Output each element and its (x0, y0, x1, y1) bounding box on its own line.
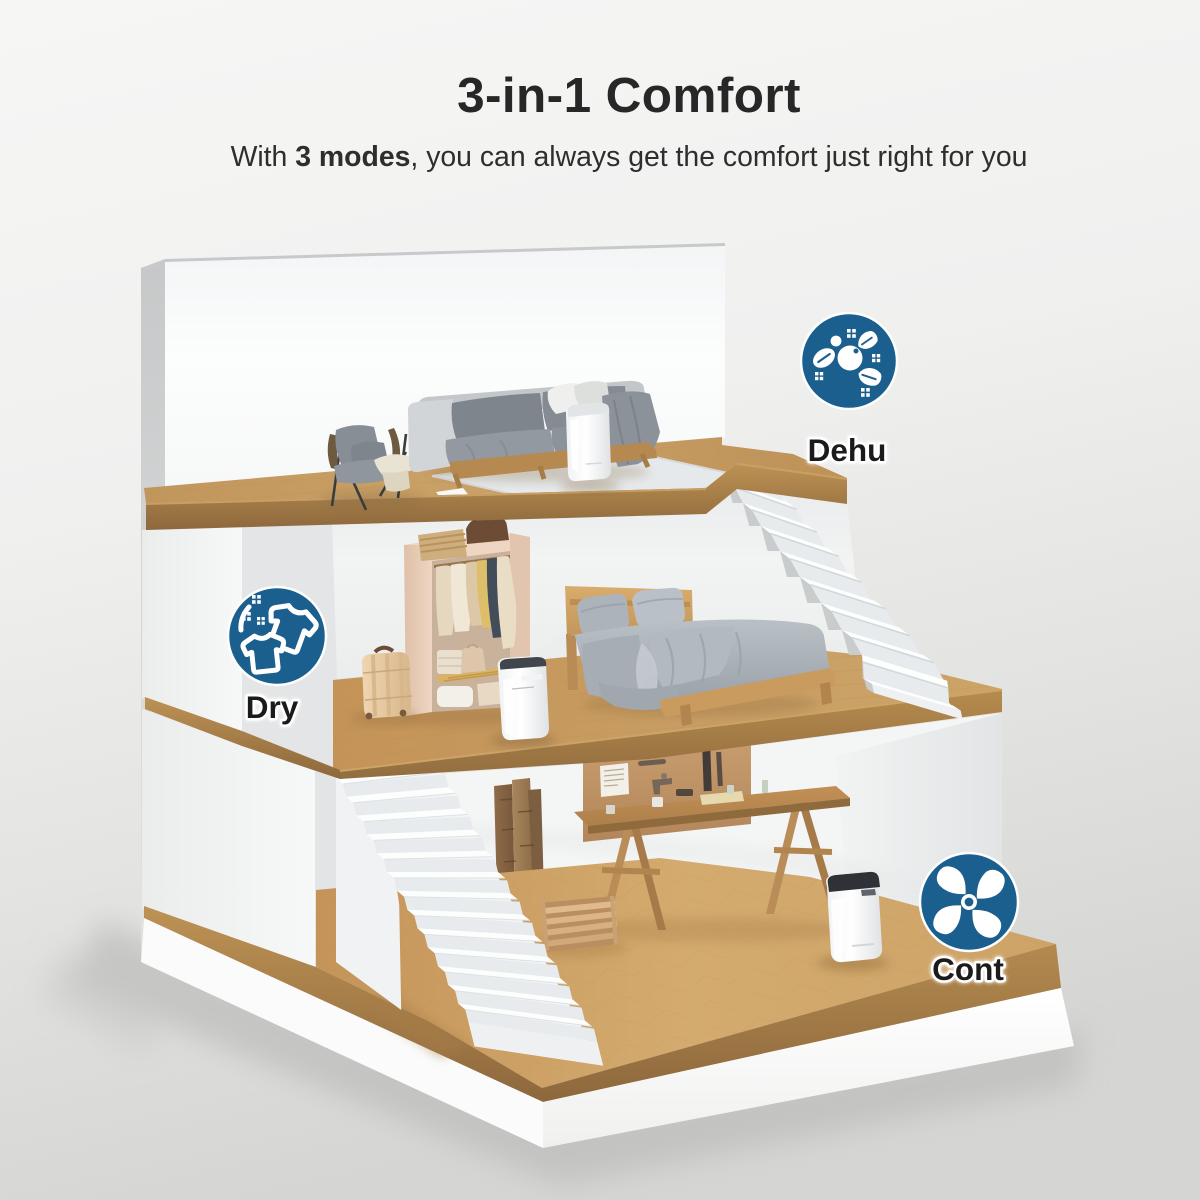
svg-text:Dry: Dry (246, 689, 299, 725)
svg-text:Cont: Cont (932, 951, 1004, 987)
svg-text:Dehu: Dehu (808, 432, 887, 468)
